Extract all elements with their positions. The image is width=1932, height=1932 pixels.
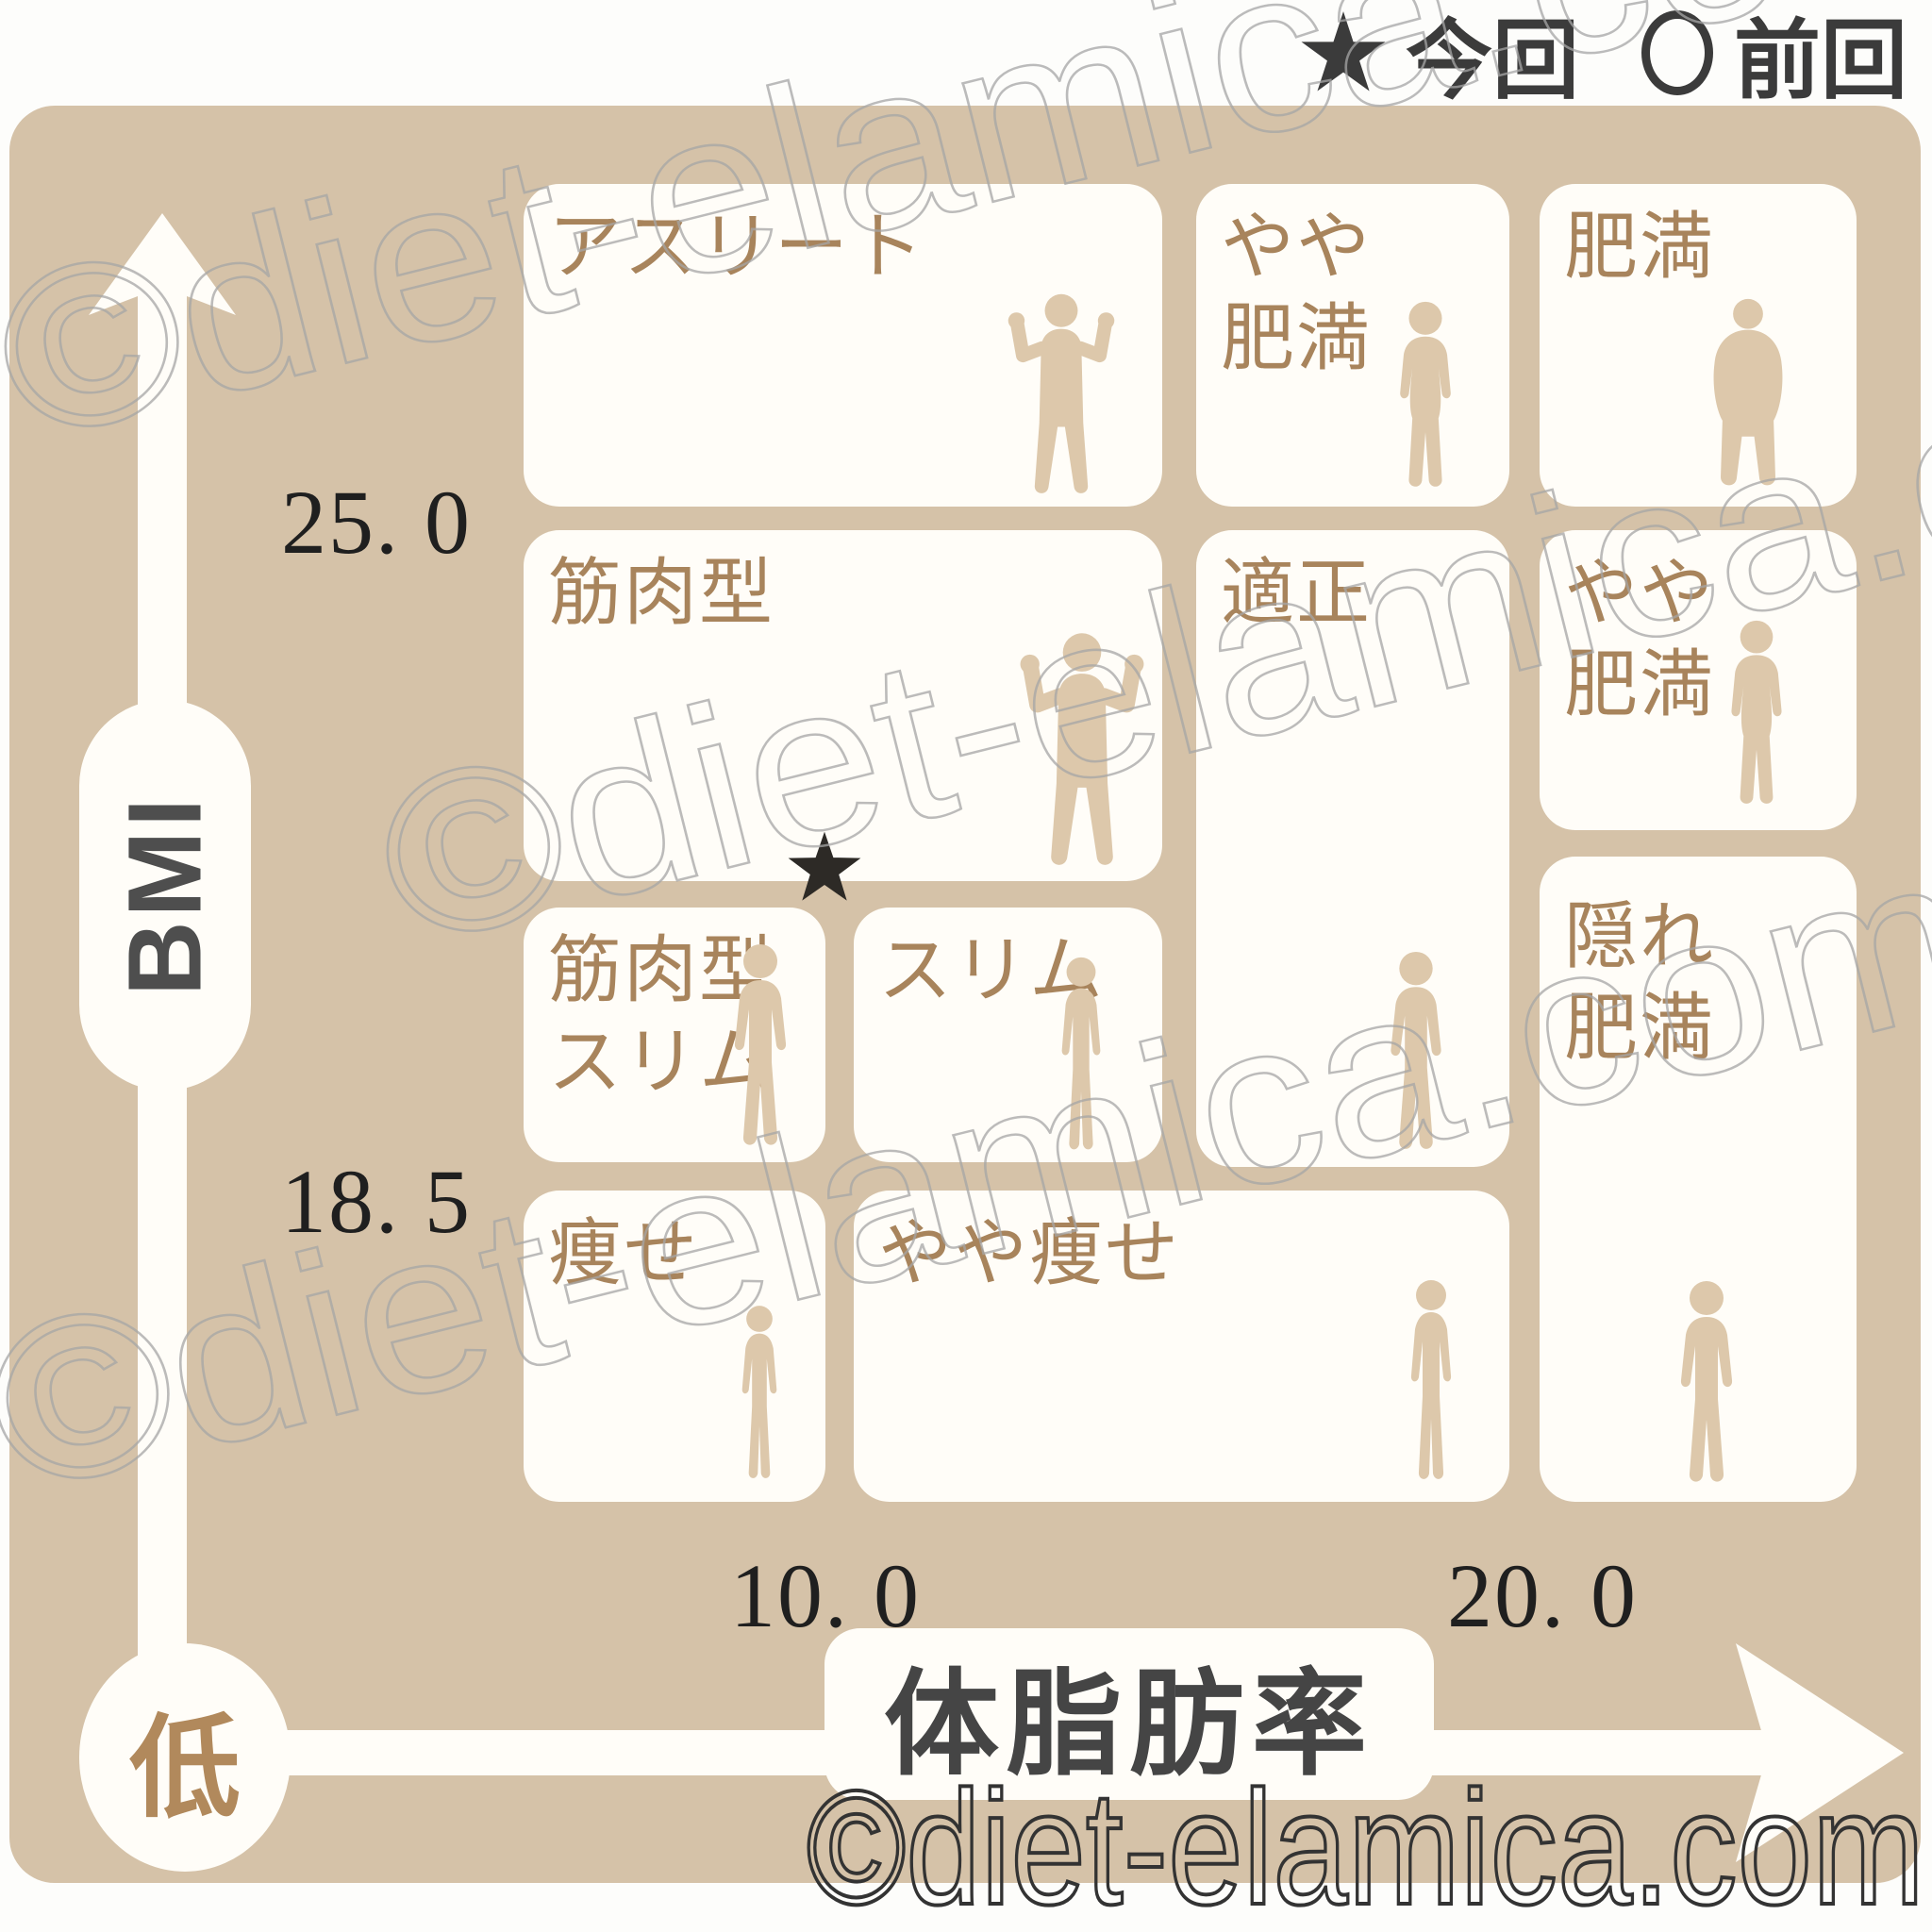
zone-label: 筋肉型 [548,547,774,639]
y-tick-25: 25. 0 [236,470,472,575]
zone-label: 隠れ肥満 [1564,891,1715,1073]
zone-label: 適正 [1221,547,1372,639]
hidden-obese-figure-icon [1657,1278,1757,1495]
slightly-thin-figure-icon [1389,1275,1474,1492]
y-tick-185: 18. 5 [236,1149,472,1254]
x-tick-20: 20. 0 [1420,1543,1665,1648]
legend-star-icon: ★ [1294,0,1392,108]
obese-figure-icon [1681,297,1815,500]
zone-label: やや肥満 [1221,201,1372,383]
y-axis-label-box: BMI [79,700,251,1091]
thin-figure-icon [723,1285,796,1507]
legend-current-label: 今回 [1406,0,1579,116]
slim-figure-icon [1036,953,1126,1162]
legend: ★ 今回 前回 [0,0,1907,106]
y-axis-label: BMI [106,794,225,996]
legend-circle-icon [1641,10,1713,95]
x-axis-label: 体脂肪率 [884,1631,1374,1798]
x-axis-origin-circle: 低 [79,1643,291,1872]
slightly-obese-figure-icon [1370,300,1481,500]
athlete-figure-icon [991,288,1132,503]
zone-label: 肥満 [1564,201,1715,292]
legend-previous-label: 前回 [1734,0,1907,116]
muscular-slim-figure-icon [709,941,811,1158]
zone-label: やや痩せ [878,1207,1180,1299]
x-axis-label-box: 体脂肪率 [824,1628,1434,1800]
appropriate-figure-icon [1366,949,1466,1162]
zone-label: やや肥満 [1564,547,1715,729]
zone-label: アスリート [548,201,925,292]
body-composition-chart: ★ 今回 前回 [0,0,1932,1932]
current-result-star-marker [783,830,866,909]
zone-label: 痩せ [548,1207,699,1299]
x-axis-origin-label: 低 [129,1677,241,1839]
muscular-figure-icon [1008,625,1157,877]
slightly-obese-right-figure-icon [1704,619,1809,817]
